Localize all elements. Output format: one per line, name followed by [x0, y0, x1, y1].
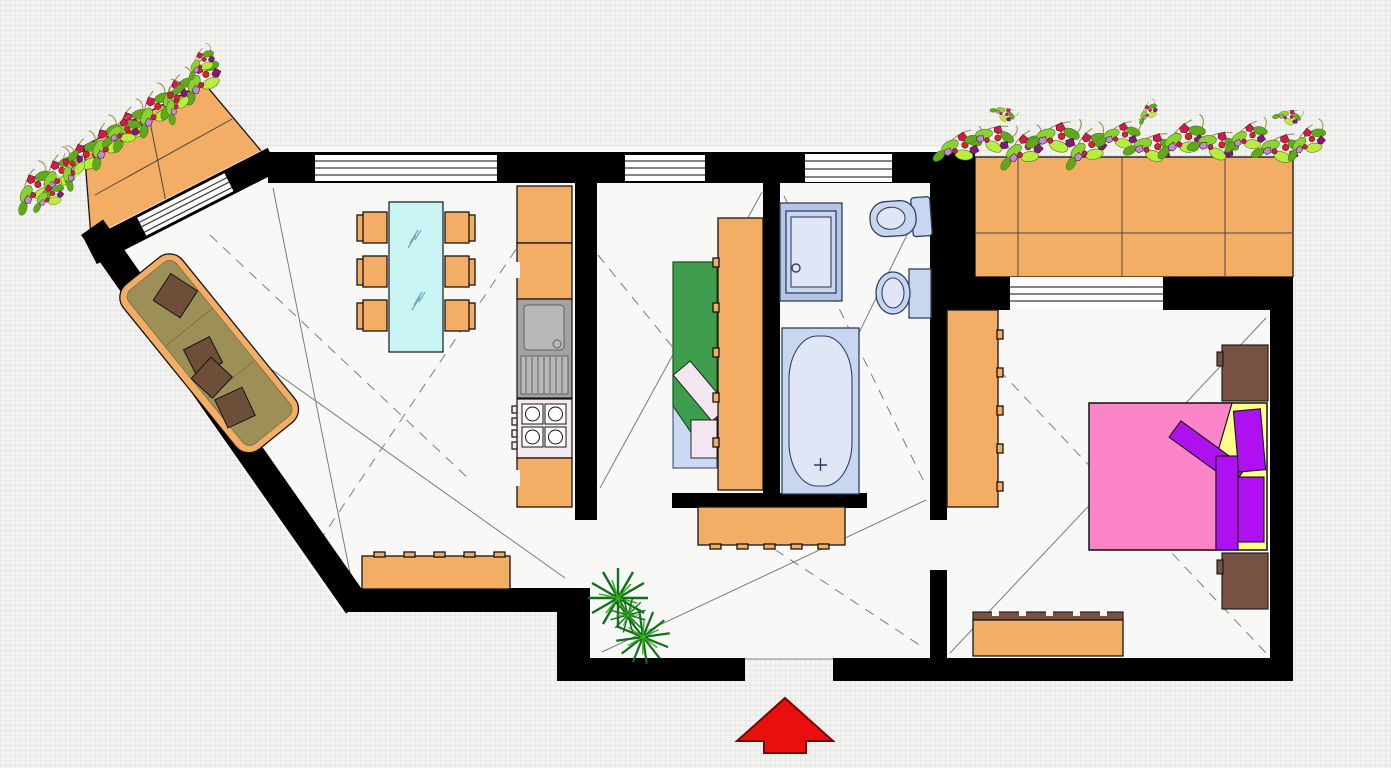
sideboard-living: [362, 552, 510, 589]
sideboard-notch: [791, 544, 802, 549]
sideboard-notch: [494, 552, 505, 557]
balcony-right: [975, 157, 1293, 277]
wall-under-balcony: [975, 277, 1010, 310]
wardrobe-body: [947, 310, 998, 507]
nightstand-bottom: [1217, 553, 1268, 609]
stove-knob: [512, 442, 517, 449]
nightstand-handle: [1217, 352, 1223, 366]
dresser-bedroom: [973, 611, 1123, 656]
wardrobe-hinge: [713, 258, 719, 267]
window-glass: [805, 154, 892, 182]
sink-drain: [553, 340, 561, 348]
window-middle-room: [625, 155, 705, 181]
sideboard-notch: [710, 544, 721, 549]
wall-right: [1270, 277, 1293, 681]
nightstand-top: [1217, 345, 1268, 401]
dresser-notch: [1073, 611, 1080, 616]
dresser-notch: [1019, 611, 1026, 616]
balcony-right-tiles: [975, 157, 1293, 277]
dresser-body: [973, 620, 1123, 656]
wardrobe-hinge: [713, 303, 719, 312]
sideboard-notch: [434, 552, 445, 557]
sideboard-notch: [374, 552, 385, 557]
dining-table: [389, 202, 443, 352]
dresser-notch: [992, 611, 999, 616]
sideboard-hall: [698, 507, 845, 549]
chair: [445, 300, 475, 331]
wardrobe-hinge: [997, 330, 1003, 339]
sideboard-body: [698, 507, 845, 545]
wall-living-middle: [575, 183, 597, 520]
sideboard-notch: [764, 544, 775, 549]
wardrobe-hinge: [997, 406, 1003, 415]
sideboard-notch: [818, 544, 829, 549]
wardrobe-bedroom: [947, 310, 1003, 507]
sideboard-notch: [737, 544, 748, 549]
bed-pillow: [1238, 477, 1264, 542]
sideboard-body: [362, 556, 510, 589]
chair: [445, 212, 475, 243]
stove-knob: [512, 418, 517, 425]
sideboard-notch: [404, 552, 415, 557]
toilet: [869, 197, 933, 240]
nightstand-handle: [1217, 560, 1223, 574]
bed-pillow: [1233, 409, 1265, 472]
wardrobe-hinge: [713, 438, 719, 447]
stove-knob: [512, 406, 517, 413]
cabinet-handle: [513, 470, 520, 486]
kitchen-cabinet: [517, 243, 572, 299]
wall-bottom-right: [833, 658, 1293, 681]
wardrobe-hinge: [997, 482, 1003, 491]
chair: [357, 300, 387, 331]
window-bathroom: [805, 154, 892, 182]
wardrobe-hinge: [713, 348, 719, 357]
wall-bath-bedroom: [930, 310, 947, 520]
stove: [512, 399, 572, 458]
bed-blanket-edge: [1216, 456, 1238, 550]
window-living: [315, 155, 497, 181]
floor-plan-canvas: [0, 0, 1391, 768]
nightstand-body: [1222, 345, 1268, 401]
nightstand-body: [1222, 553, 1268, 609]
floor-plan-drawing: [0, 0, 1391, 768]
window-bedroom: [1010, 279, 1163, 308]
wall-bottom-left: [575, 658, 745, 681]
wall-living-bottom: [345, 588, 575, 612]
wardrobe-body: [718, 218, 763, 490]
basin-counter: [909, 269, 931, 318]
wall-hall-north: [672, 493, 867, 508]
kitchen-cabinet: [517, 458, 572, 507]
chair: [445, 256, 475, 287]
kitchen-sink: [517, 299, 572, 398]
double-bed: [1089, 403, 1267, 550]
chair: [357, 256, 387, 287]
sideboard-notch: [464, 552, 475, 557]
bed-pink-blanket: [1089, 403, 1232, 550]
wall-hall-bedroom: [930, 570, 947, 658]
wardrobe-hinge: [997, 368, 1003, 377]
shower-cabin: [780, 203, 842, 301]
cabinet-handle: [513, 262, 520, 278]
dining-set: [357, 202, 475, 352]
wall-middle-bath: [763, 183, 780, 497]
shower-door: [791, 217, 831, 287]
wall-corner-block: [930, 152, 975, 310]
chair: [357, 212, 387, 243]
stove-knob: [512, 430, 517, 437]
wall-step: [557, 588, 590, 681]
wardrobe-middle-room: [713, 218, 763, 490]
bathtub: [782, 328, 859, 494]
kitchen-cabinet: [517, 186, 572, 243]
dresser-notch: [1046, 611, 1053, 616]
wardrobe-hinge: [997, 444, 1003, 453]
dresser-notch: [1100, 611, 1107, 616]
wardrobe-hinge: [713, 393, 719, 402]
kitchen: [512, 186, 572, 507]
basin-inner: [882, 278, 904, 308]
entrance-opening: [745, 659, 833, 681]
